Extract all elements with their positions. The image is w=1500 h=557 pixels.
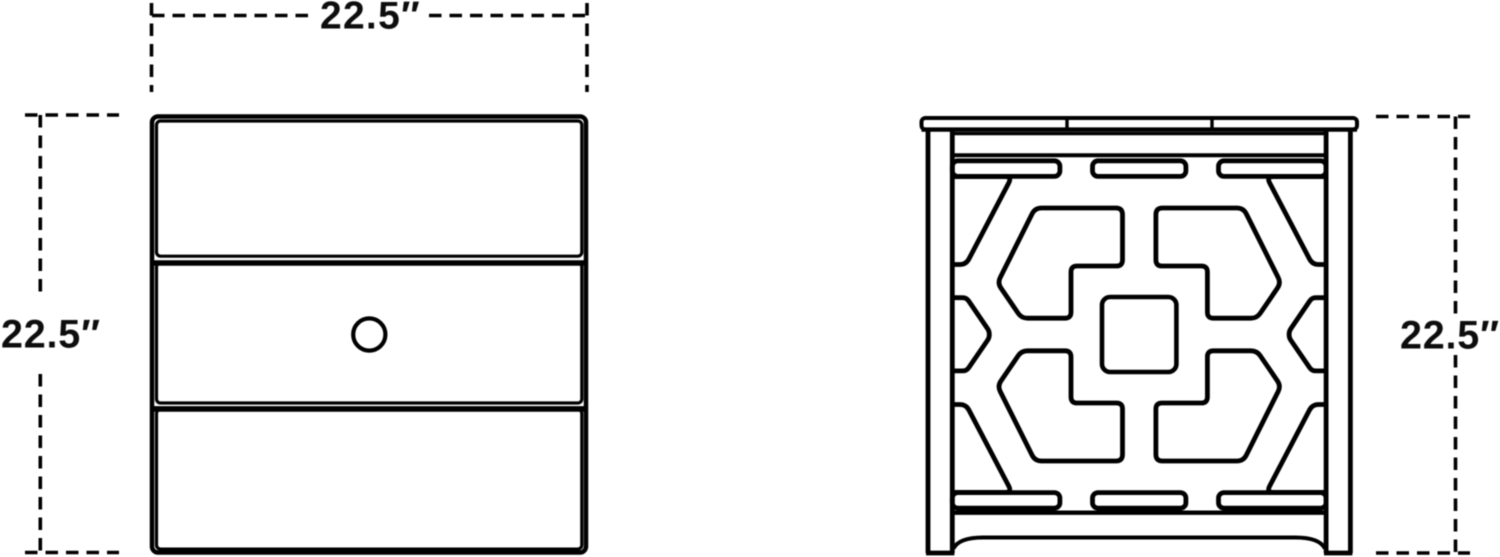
svg-text:22.5″: 22.5″ xyxy=(1400,314,1500,358)
svg-text:22.5″: 22.5″ xyxy=(320,0,421,38)
svg-text:22.5″: 22.5″ xyxy=(1,313,101,357)
